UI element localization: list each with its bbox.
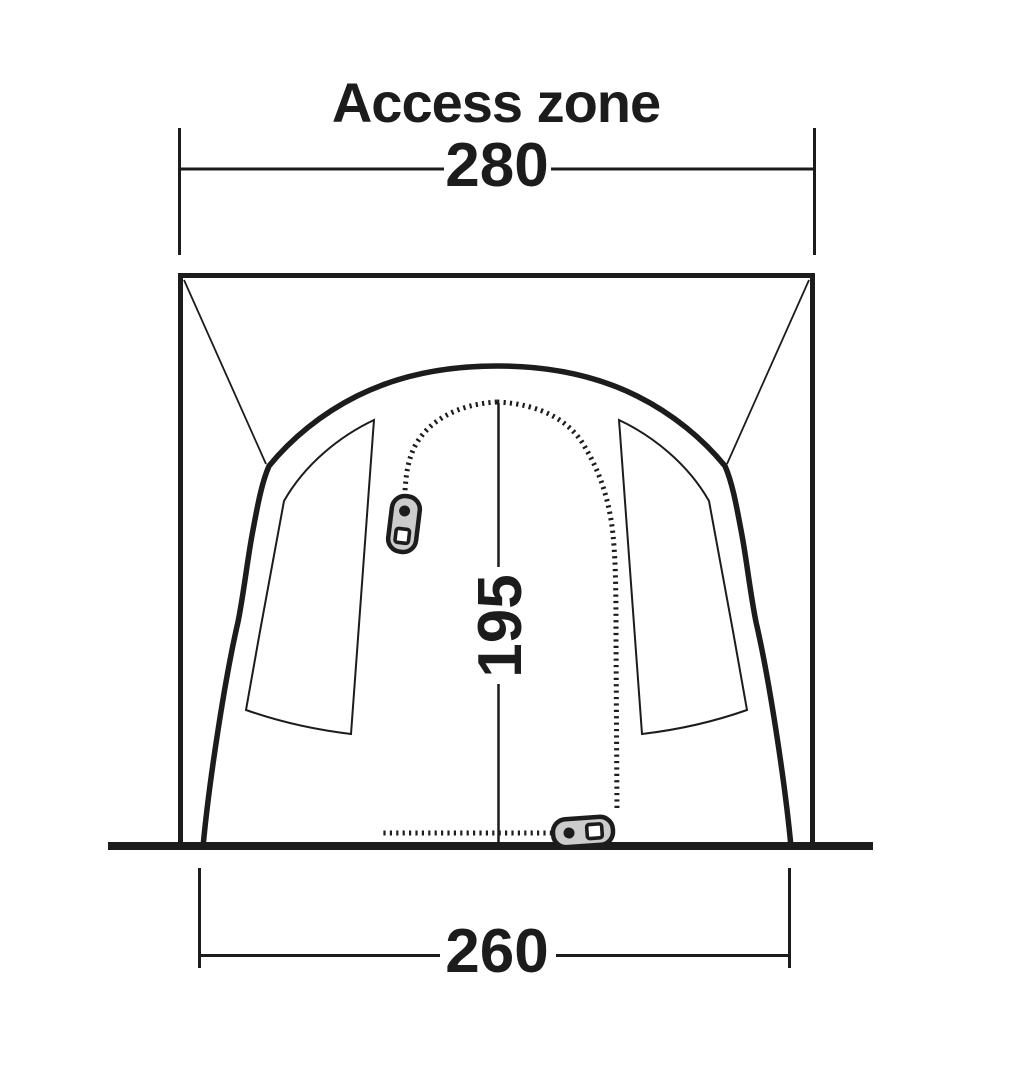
diagram-canvas: Access zone 280 195 bbox=[0, 0, 1016, 1080]
diagram-title: Access zone bbox=[332, 71, 660, 134]
dimension-label-top-width: 280 bbox=[445, 131, 548, 200]
corner-seam-left bbox=[184, 280, 266, 464]
dimension-base-width: 260 bbox=[200, 868, 790, 986]
dimension-label-base-width: 260 bbox=[445, 917, 548, 986]
corner-seam-right bbox=[727, 280, 809, 464]
dimension-label-door-height: 195 bbox=[466, 574, 535, 677]
zipper-pull-top-icon bbox=[387, 495, 422, 554]
dimension-top-width: 280 bbox=[180, 128, 815, 255]
tent-dimension-diagram: Access zone 280 195 bbox=[0, 0, 1016, 1080]
zipper-pull-bottom-icon bbox=[552, 816, 614, 848]
